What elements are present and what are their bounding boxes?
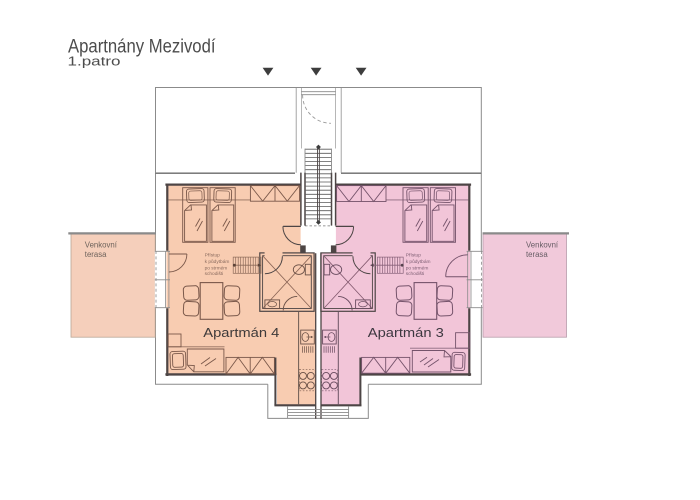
svg-text:1.patro: 1.patro xyxy=(68,54,121,69)
svg-text:k půdytbám: k půdytbám xyxy=(205,258,230,265)
svg-text:po strmém: po strmém xyxy=(406,266,429,272)
svg-text:Apartmán 4: Apartmán 4 xyxy=(203,325,279,340)
svg-text:Přístup: Přístup xyxy=(205,252,221,258)
svg-text:Přístup: Přístup xyxy=(406,252,422,258)
svg-text:schodišti: schodišti xyxy=(205,271,224,277)
svg-text:Apartmán 3: Apartmán 3 xyxy=(368,325,444,340)
svg-text:po strmém: po strmém xyxy=(205,266,228,272)
svg-text:Venkovní: Venkovní xyxy=(526,241,559,250)
svg-text:terasa: terasa xyxy=(526,250,548,259)
svg-text:schodišti: schodišti xyxy=(406,271,425,277)
svg-text:Venkovní: Venkovní xyxy=(85,241,118,250)
svg-text:k půdytbám: k půdytbám xyxy=(406,258,431,265)
svg-text:terasa: terasa xyxy=(85,250,107,259)
